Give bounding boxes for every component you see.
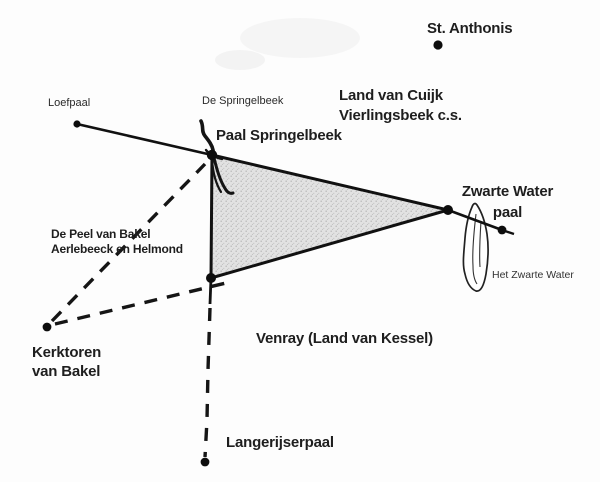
scan-smudge	[240, 18, 360, 58]
paal-springelbeek-marker	[207, 150, 217, 160]
peel-claim-line1: De Peel van Bakel	[51, 227, 183, 242]
kerktoren-label: Kerktoren van Bakel	[32, 343, 101, 381]
peel-claim-line2: Aerlebeeck en Helmond	[51, 242, 183, 257]
st-anthonis-label: St. Anthonis	[427, 19, 512, 39]
second-zwarte-water-marker	[498, 226, 507, 235]
south-vertex-marker	[206, 273, 216, 283]
zwarte-water-paal-label: Zwarte Water paal	[450, 181, 565, 223]
paal-springelbeek-label: Paal Springelbeek	[216, 126, 342, 146]
dashed-claim-line-to-south-vertex	[55, 283, 226, 324]
zwarte-water-paal-line1: Zwarte Water	[450, 181, 565, 202]
boundary-sketch-map: St. Anthonis Land van Cuijk Vierlingsbee…	[0, 0, 600, 482]
loefpaal-label: Loefpaal	[48, 97, 90, 109]
loefpaal-marker	[73, 120, 80, 127]
springelbeek-stream-label: De Springelbeek	[202, 95, 283, 107]
boundary-line-loefpaal-to-paal-springelbeek	[77, 124, 212, 155]
zwarte-water-paal-line2: paal	[450, 202, 565, 223]
langerijserpaal-marker	[201, 458, 210, 467]
peel-claim-label: De Peel van Bakel Aerlebeeck en Helmond	[51, 227, 183, 257]
langerijserpaal-label: Langerijserpaal	[226, 433, 334, 453]
st-anthonis-marker	[433, 40, 442, 49]
kerktoren-line1: Kerktoren	[32, 343, 101, 362]
het-zwarte-water-label: Het Zwarte Water	[492, 269, 574, 281]
kerktoren-van-bakel-marker	[43, 323, 52, 332]
territory-triangle	[211, 155, 448, 278]
dashed-line-to-langerijserpaal	[205, 308, 210, 457]
kerktoren-line2: van Bakel	[32, 362, 101, 381]
region-south-label: Venray (Land van Kessel)	[256, 329, 433, 349]
region-north-line2: Vierlingsbeek c.s.	[339, 106, 462, 126]
region-north-label: Land van Cuijk Vierlingsbeek c.s.	[339, 86, 462, 126]
scan-smudge	[215, 50, 265, 70]
region-north-line1: Land van Cuijk	[339, 86, 462, 106]
